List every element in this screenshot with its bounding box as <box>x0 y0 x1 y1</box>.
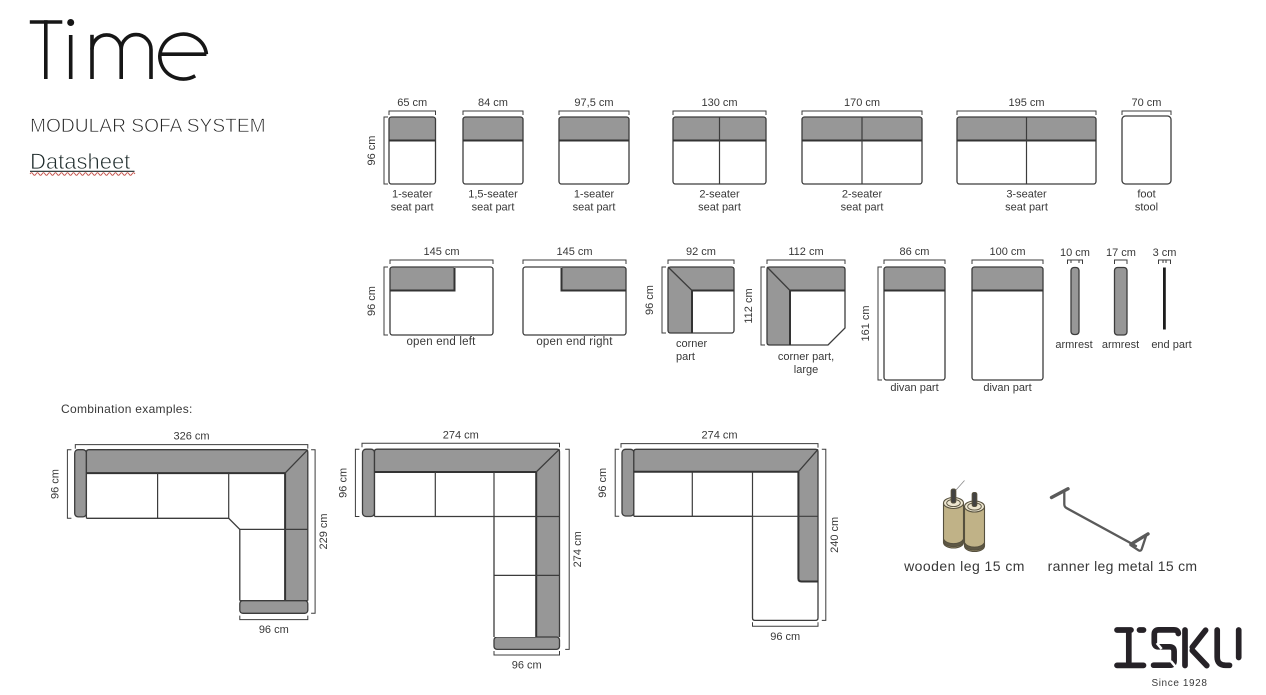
svg-text:96 cm: 96 cm <box>597 468 609 498</box>
svg-text:seat part: seat part <box>698 202 741 214</box>
svg-text:corner part,: corner part, <box>778 351 834 363</box>
svg-text:1-seater: 1-seater <box>574 189 615 201</box>
svg-text:wooden leg 15 cm: wooden leg 15 cm <box>903 558 1025 574</box>
svg-text:MODULAR SOFA SYSTEM: MODULAR SOFA SYSTEM <box>30 116 266 137</box>
svg-text:2-seater: 2-seater <box>699 189 740 201</box>
svg-text:96 cm: 96 cm <box>259 624 289 636</box>
svg-text:seat part: seat part <box>1005 202 1048 214</box>
svg-text:229 cm: 229 cm <box>318 513 330 549</box>
svg-text:100 cm: 100 cm <box>989 246 1025 258</box>
svg-text:65 cm: 65 cm <box>397 97 427 109</box>
svg-text:armrest: armrest <box>1102 339 1139 351</box>
svg-text:part: part <box>676 351 695 363</box>
svg-text:seat part: seat part <box>573 202 616 214</box>
svg-text:2-seater: 2-seater <box>842 189 883 201</box>
svg-text:divan part: divan part <box>983 382 1031 394</box>
svg-text:112 cm: 112 cm <box>743 288 755 323</box>
svg-text:274 cm: 274 cm <box>443 429 479 441</box>
svg-text:96 cm: 96 cm <box>512 660 542 672</box>
svg-text:240 cm: 240 cm <box>829 517 841 553</box>
svg-text:96 cm: 96 cm <box>337 468 349 498</box>
svg-text:84 cm: 84 cm <box>478 97 508 109</box>
svg-text:274 cm: 274 cm <box>701 430 737 442</box>
svg-text:86 cm: 86 cm <box>900 246 930 258</box>
svg-text:1-seater: 1-seater <box>392 189 433 201</box>
svg-text:open end left: open end left <box>406 336 476 348</box>
svg-text:96 cm: 96 cm <box>366 286 378 316</box>
svg-text:145 cm: 145 cm <box>556 246 592 258</box>
svg-text:10 cm: 10 cm <box>1060 247 1090 259</box>
svg-text:96 cm: 96 cm <box>644 285 656 315</box>
svg-text:70 cm: 70 cm <box>1132 97 1162 109</box>
svg-text:Datasheet: Datasheet <box>30 149 130 174</box>
svg-text:1,5-seater: 1,5-seater <box>468 189 518 201</box>
svg-text:17 cm: 17 cm <box>1106 247 1136 259</box>
svg-text:145 cm: 145 cm <box>423 246 459 258</box>
svg-text:96 cm: 96 cm <box>770 631 800 643</box>
svg-text:divan part: divan part <box>890 382 938 394</box>
svg-text:stool: stool <box>1135 202 1158 214</box>
svg-text:Combination examples:: Combination examples: <box>61 402 193 416</box>
svg-text:170 cm: 170 cm <box>844 97 880 109</box>
svg-text:274 cm: 274 cm <box>572 531 584 567</box>
svg-text:326 cm: 326 cm <box>174 431 210 443</box>
svg-text:seat part: seat part <box>472 202 515 214</box>
svg-text:112 cm: 112 cm <box>788 246 823 258</box>
svg-text:92 cm: 92 cm <box>686 246 716 258</box>
svg-text:96 cm: 96 cm <box>366 136 378 166</box>
svg-text:3-seater: 3-seater <box>1006 189 1047 201</box>
svg-text:corner: corner <box>676 338 708 350</box>
svg-text:Since 1928: Since 1928 <box>1151 678 1207 689</box>
svg-text:foot: foot <box>1137 189 1155 201</box>
svg-text:97,5 cm: 97,5 cm <box>574 97 613 109</box>
svg-text:ranner leg metal 15 cm: ranner leg metal 15 cm <box>1048 558 1198 574</box>
svg-text:large: large <box>794 364 818 376</box>
svg-text:end part: end part <box>1151 339 1191 351</box>
svg-text:195 cm: 195 cm <box>1008 97 1044 109</box>
svg-text:seat part: seat part <box>391 202 434 214</box>
svg-text:161 cm: 161 cm <box>860 305 872 341</box>
svg-text:seat part: seat part <box>841 202 884 214</box>
svg-text:open end right: open end right <box>536 336 613 348</box>
svg-text:130 cm: 130 cm <box>701 97 737 109</box>
svg-text:armrest: armrest <box>1055 339 1092 351</box>
svg-text:96 cm: 96 cm <box>49 469 61 499</box>
svg-text:3 cm: 3 cm <box>1153 247 1177 259</box>
